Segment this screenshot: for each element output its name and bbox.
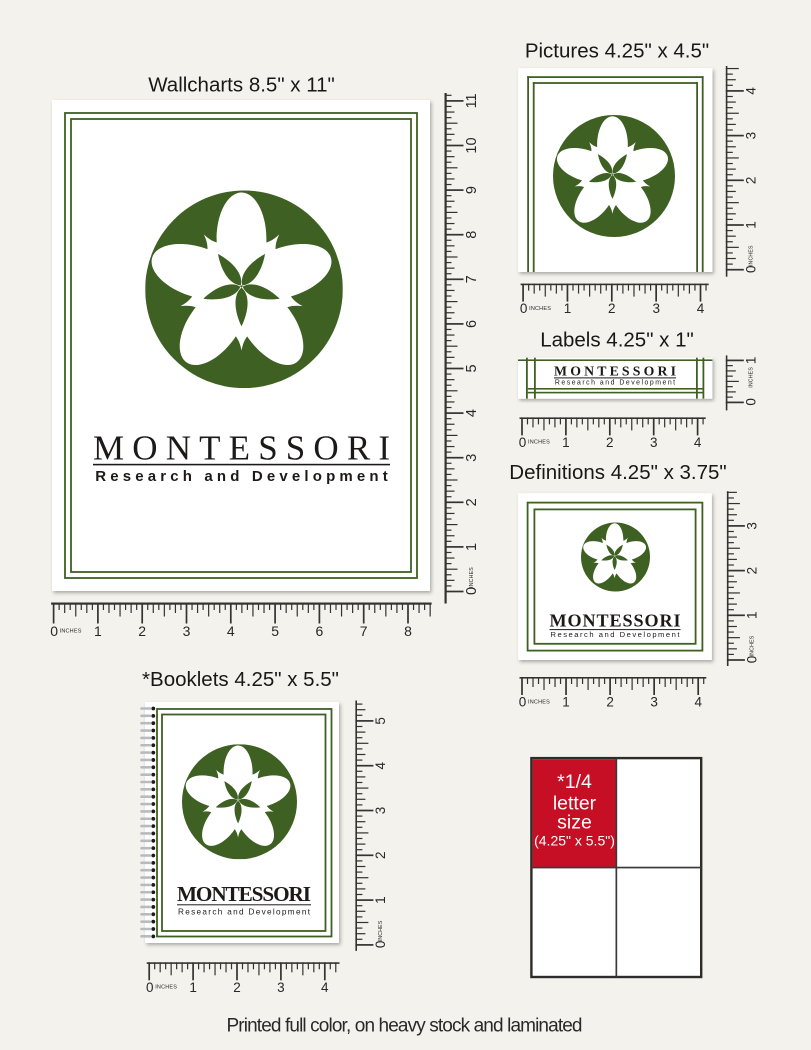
svg-text:7: 7: [464, 275, 480, 283]
svg-text:6: 6: [316, 623, 324, 639]
svg-text:Research and Development: Research and Development: [555, 380, 675, 387]
svg-text:11: 11: [464, 93, 480, 108]
svg-text:4: 4: [227, 623, 235, 639]
svg-text:INCHES: INCHES: [749, 635, 755, 656]
svg-text:INCHES: INCHES: [60, 629, 82, 635]
svg-text:2: 2: [233, 980, 241, 995]
svg-text:Wallcharts 8.5" x 11": Wallcharts 8.5" x 11": [148, 74, 335, 97]
svg-text:*Booklets 4.25" x 5.5": *Booklets 4.25" x 5.5": [142, 668, 339, 691]
svg-text:0: 0: [519, 435, 527, 450]
svg-text:MONTESSORI: MONTESSORI: [550, 611, 681, 631]
svg-text:INCHES: INCHES: [378, 920, 384, 941]
svg-text:8: 8: [404, 623, 412, 639]
svg-text:2: 2: [373, 852, 388, 860]
svg-text:0: 0: [146, 980, 154, 995]
svg-text:INCHES: INCHES: [528, 699, 550, 705]
svg-text:INCHES: INCHES: [469, 567, 475, 588]
svg-text:(4.25" x 5.5"): (4.25" x 5.5"): [534, 833, 615, 849]
svg-text:6: 6: [464, 320, 480, 328]
svg-text:2: 2: [606, 695, 614, 710]
svg-text:9: 9: [464, 186, 480, 194]
svg-text:5: 5: [464, 364, 480, 372]
svg-text:1: 1: [562, 435, 570, 450]
svg-text:1: 1: [744, 612, 759, 620]
svg-text:INCHES: INCHES: [528, 440, 550, 446]
svg-text:1: 1: [464, 543, 480, 551]
svg-text:INCHES: INCHES: [748, 245, 754, 266]
svg-text:4: 4: [743, 87, 758, 95]
svg-text:3: 3: [743, 132, 758, 140]
svg-text:2: 2: [464, 498, 480, 506]
svg-text:5: 5: [271, 623, 279, 639]
svg-text:*1/4: *1/4: [557, 771, 592, 793]
svg-text:2: 2: [138, 623, 146, 639]
svg-text:Printed full color, on heavy s: Printed full color, on heavy stock and l…: [227, 1016, 583, 1037]
svg-text:MONTESSORI: MONTESSORI: [554, 364, 676, 379]
svg-text:1: 1: [189, 980, 197, 995]
svg-text:size: size: [557, 812, 592, 834]
svg-text:Definitions 4.25" x 3.75": Definitions 4.25" x 3.75": [509, 461, 726, 484]
svg-text:4: 4: [464, 409, 480, 417]
svg-text:3: 3: [650, 695, 658, 710]
svg-text:4: 4: [694, 695, 702, 710]
svg-text:1: 1: [562, 695, 570, 710]
svg-text:5: 5: [373, 717, 388, 725]
svg-text:Research and Development: Research and Development: [178, 908, 311, 917]
svg-text:3: 3: [373, 807, 388, 815]
svg-text:4: 4: [321, 980, 329, 995]
svg-text:1: 1: [743, 221, 758, 229]
svg-text:0: 0: [743, 398, 758, 406]
svg-text:2: 2: [606, 435, 614, 450]
svg-text:1: 1: [564, 301, 572, 316]
svg-text:1: 1: [743, 357, 758, 365]
svg-text:INCHES: INCHES: [748, 367, 754, 388]
svg-text:3: 3: [464, 454, 480, 462]
svg-text:2: 2: [608, 301, 616, 316]
svg-text:2: 2: [743, 177, 758, 185]
svg-text:Research and Development: Research and Development: [551, 630, 681, 639]
svg-text:1: 1: [373, 896, 388, 904]
svg-text:1: 1: [94, 623, 102, 639]
svg-text:8: 8: [464, 231, 480, 239]
svg-text:3: 3: [652, 301, 660, 316]
svg-text:Labels 4.25" x 1": Labels 4.25" x 1": [540, 329, 694, 352]
svg-text:2: 2: [744, 567, 759, 575]
svg-text:3: 3: [650, 435, 658, 450]
svg-text:3: 3: [183, 623, 191, 639]
svg-text:3: 3: [277, 980, 285, 995]
svg-text:0: 0: [520, 301, 528, 316]
svg-text:0: 0: [50, 623, 58, 639]
svg-text:MONTESSORI: MONTESSORI: [177, 882, 311, 906]
svg-text:Pictures 4.25" x 4.5": Pictures 4.25" x 4.5": [525, 39, 709, 62]
svg-text:INCHES: INCHES: [529, 306, 551, 312]
svg-text:7: 7: [360, 623, 368, 639]
svg-text:3: 3: [744, 522, 759, 530]
svg-text:INCHES: INCHES: [155, 985, 177, 991]
svg-text:4: 4: [694, 435, 702, 450]
svg-text:10: 10: [464, 137, 480, 153]
svg-text:0: 0: [519, 695, 527, 710]
svg-text:4: 4: [697, 301, 705, 316]
svg-text:4: 4: [373, 761, 388, 769]
